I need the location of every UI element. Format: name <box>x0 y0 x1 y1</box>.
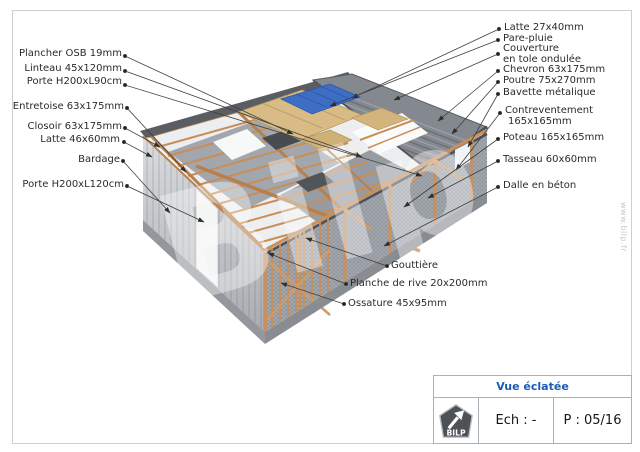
label-poutre: Poutre 75x270mm <box>503 75 596 86</box>
label-bavette: Bavette métalique <box>503 87 596 98</box>
bilp-logo-cell: BILP <box>434 398 479 443</box>
label-bardage: Bardage <box>78 154 120 165</box>
label-porte-h200xl90: Porte H200xL90cm <box>27 76 122 87</box>
label-linteau: Linteau 45x120mm <box>24 63 122 74</box>
label-porte-h200xl120: Porte H200xL120cm <box>22 179 124 190</box>
bilp-logo: BILP <box>438 401 474 441</box>
label-dalle: Dalle en béton <box>503 180 576 191</box>
label-entretoise: Entretoise 63x175mm <box>13 101 124 112</box>
label-closoir: Closoir 63x175mm <box>28 121 123 132</box>
label-couverture-line1: Couverture <box>503 43 559 54</box>
drawing-title: Vue éclatée <box>434 376 631 398</box>
label-contreventement-line2: 165x165mm <box>508 116 593 127</box>
page-number: P : 05/16 <box>554 398 631 443</box>
label-ossature: Ossature 45x95mm <box>348 298 447 309</box>
label-latte-46x60: Latte 46x60mm <box>40 134 120 145</box>
label-gouttiere: Gouttière <box>391 260 438 271</box>
label-contreventement-line1: Contreventement <box>505 105 593 116</box>
logo-text: BILP <box>446 428 466 437</box>
label-planche-de-rive: Planche de rive 20x200mm <box>350 278 487 289</box>
title-block: Vue éclatée BILP Ech : - P : 05/16 <box>433 375 632 444</box>
label-tasseau: Tasseau 60x60mm <box>503 154 597 165</box>
label-latte-27x40: Latte 27x40mm <box>504 22 584 33</box>
scale-value: Ech : - <box>479 398 554 443</box>
watermark-url: www.bilp.fr <box>619 202 628 312</box>
construction-drawing-page: { "watermark": { "big_text": "Bilp", "si… <box>0 0 640 452</box>
label-plancher-osb: Plancher OSB 19mm <box>19 48 122 59</box>
label-couverture: Couverture en tole ondulée <box>503 43 581 65</box>
label-contreventement: Contreventement 165x165mm <box>505 105 593 127</box>
label-poteau: Poteau 165x165mm <box>503 132 604 143</box>
label-chevron: Chevron 63x175mm <box>503 64 605 75</box>
